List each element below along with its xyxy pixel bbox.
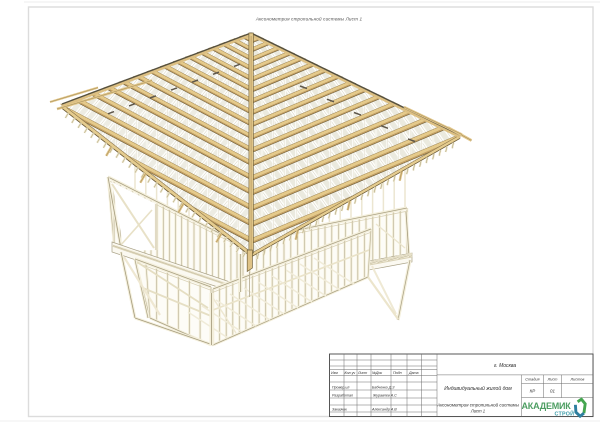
svg-text:01: 01: [550, 389, 555, 394]
svg-text:Индивидуальный жилой дом: Индивидуальный жилой дом: [444, 385, 512, 392]
svg-text:Лист 1: Лист 1: [470, 409, 485, 414]
svg-text:Лист: Лист: [547, 378, 558, 382]
svg-text:Провер.ил: Провер.ил: [332, 386, 349, 390]
svg-text:Стадия: Стадия: [525, 378, 539, 382]
svg-text:Листов: Листов: [569, 378, 584, 382]
svg-text:Лист: Лист: [357, 371, 367, 375]
svg-text:Подп: Подп: [393, 371, 402, 375]
svg-text:КР: КР: [530, 389, 536, 394]
svg-text:Александр А.В: Александр А.В: [371, 408, 397, 412]
svg-text:Разработал: Разработал: [332, 394, 353, 398]
svg-text:Аксонометрия стропильной систе: Аксонометрия стропильной системы: [436, 402, 520, 408]
svg-text:Дата: Дата: [408, 371, 418, 375]
svg-text:Кол.уч: Кол.уч: [345, 371, 356, 375]
svg-text:№Док: №Док: [372, 371, 382, 375]
svg-text:Журавлев А.С: Журавлев А.С: [372, 394, 397, 398]
svg-text:Заказчик: Заказчик: [332, 408, 347, 412]
svg-text:АКАДЕМИК: АКАДЕМИК: [522, 401, 572, 411]
svg-text:СТРОЙ: СТРОЙ: [555, 409, 575, 417]
svg-text:Бабченко Д.З: Бабченко Д.З: [372, 386, 395, 390]
svg-text:Аксонометрия стропильной сис: Аксонометрия стропильной системы Лист 1: [255, 16, 363, 22]
svg-text:г. Москва: г. Москва: [494, 363, 517, 369]
svg-text:Изм: Изм: [331, 371, 338, 375]
